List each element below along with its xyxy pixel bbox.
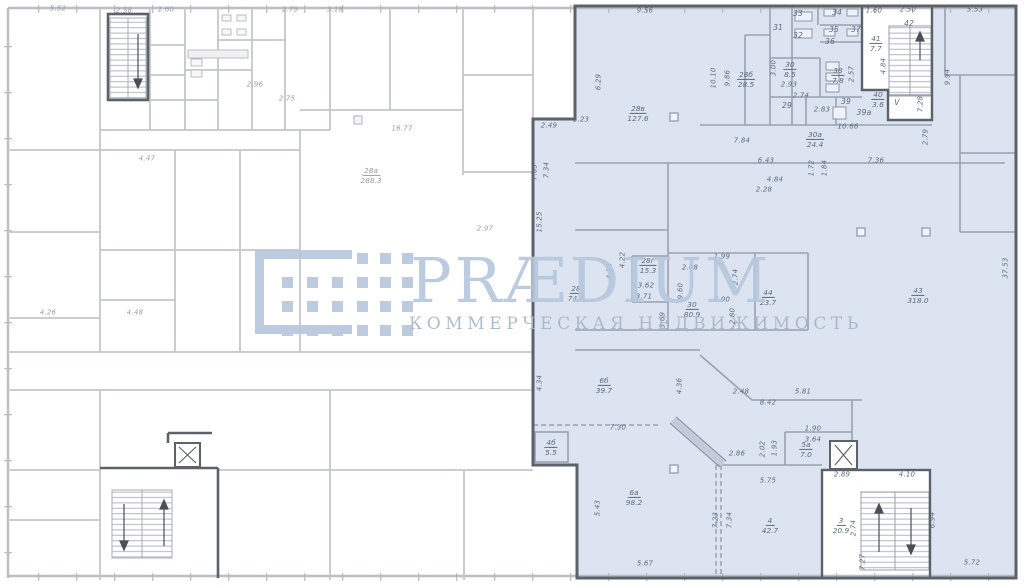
- dimension-label: 5.53: [967, 7, 983, 14]
- dimension-label: 4.26: [40, 310, 56, 317]
- dimension-label: 7.34: [544, 162, 551, 178]
- dimension-label: 3.18: [327, 7, 343, 14]
- room-number-label: 32: [793, 32, 803, 40]
- dimension-label: 2.93: [781, 82, 797, 89]
- dimension-label: 7.23: [713, 512, 720, 528]
- dimension-label: 9.86: [725, 70, 732, 86]
- dimension-label: 37.53: [1003, 257, 1010, 278]
- dimension-label: 4.36: [677, 378, 684, 394]
- room-number-label: 35: [829, 26, 839, 34]
- dimension-label: 7.03: [532, 164, 539, 180]
- dimension-label: 1.90: [805, 426, 821, 433]
- dimension-label: 2.80: [730, 308, 737, 324]
- room-number-label: 34: [832, 9, 842, 17]
- room-area-label: 4423.7: [760, 281, 776, 307]
- dimension-label: 1.72: [809, 160, 816, 176]
- room-area-label: 30а24.4: [806, 123, 824, 149]
- dimension-label: 4.22: [620, 252, 627, 268]
- dimension-label: 2.57: [849, 66, 856, 82]
- room-area-label: 442.7: [762, 509, 778, 535]
- dimension-label: 4.48: [127, 310, 143, 317]
- dimension-label: 2.28: [756, 187, 772, 194]
- stairwell-bottom-right: [861, 492, 929, 570]
- dimension-label: 1.93: [772, 440, 779, 456]
- window-band-left: [4, 8, 12, 578]
- room-area-label: 28в127.6: [627, 97, 648, 123]
- dimension-label: 2.89: [834, 472, 850, 479]
- room-area-label: 308.5: [783, 53, 796, 79]
- dimension-label: 10.66: [837, 124, 858, 131]
- dimension-label: 6.43: [758, 158, 774, 165]
- room-area-label: 417.7: [869, 27, 882, 53]
- dimension-label: 2.58: [116, 8, 132, 15]
- dimension-label: 1.60: [866, 8, 882, 15]
- dimension-label: 4.84: [881, 58, 888, 74]
- dimension-label: 4.33: [607, 263, 614, 279]
- dimension-label: 4.47: [139, 156, 155, 163]
- dimension-label: 2.02: [760, 441, 767, 457]
- dimension-label: 15.25: [537, 211, 544, 232]
- dimension-label: 7.00: [714, 297, 730, 304]
- dimension-label: 6.94: [930, 512, 937, 528]
- dimension-label: 1.99: [714, 254, 730, 261]
- room-area-label: 28г15.3: [639, 249, 656, 275]
- room-number-label: 42: [904, 20, 914, 28]
- dimension-label: 2.79: [282, 7, 298, 14]
- dimension-label: 7.30: [610, 425, 626, 432]
- room-area-label: 43318.0: [907, 279, 928, 305]
- dimension-label: 4.84: [767, 177, 783, 184]
- dimension-label: 7.27: [860, 554, 867, 570]
- room-area-label: 2874.5: [568, 277, 584, 303]
- dimension-label: 5.72: [964, 560, 980, 567]
- dimension-label: 2.49: [541, 123, 557, 130]
- dimension-label: 2.74: [793, 93, 809, 100]
- dimension-label: 2.74: [851, 520, 858, 536]
- room-number-label: 36: [825, 38, 835, 46]
- dimension-label: 2.79: [923, 129, 930, 145]
- dimension-label: 4.34: [537, 375, 544, 391]
- dimension-label: 7.28: [918, 96, 925, 112]
- dimension-label: 2.74: [733, 269, 740, 285]
- dimension-label: 5.67: [637, 561, 653, 568]
- dimension-label: 2.75: [279, 96, 295, 103]
- room-area-label: 28а288.3: [360, 159, 381, 185]
- dimension-label: 8.42: [760, 400, 776, 407]
- dimension-label: 2.50: [900, 7, 916, 14]
- stairwell-bottom-left: [112, 490, 172, 558]
- dimension-label: 4.10: [899, 472, 915, 479]
- dimension-label: 2.48: [733, 389, 749, 396]
- stairwell-top-left: [110, 18, 146, 98]
- room-number-label: 37: [851, 26, 861, 34]
- floor-plan-page: 9.561.602.505.534.847.282.573.002.932.74…: [0, 0, 1024, 587]
- dimension-label: 7.36: [868, 158, 884, 165]
- dimension-label: 7.34: [727, 512, 734, 528]
- dimension-label: 2.83: [814, 107, 830, 114]
- dimension-label: 1.84: [822, 160, 829, 176]
- dimension-label: 5.43: [595, 500, 602, 516]
- room-area-label: 28б28.5: [737, 63, 755, 89]
- walls-left-wing: [8, 8, 533, 580]
- room-area-label: 3080.9: [684, 293, 700, 319]
- room-area-label: 403.6: [871, 83, 884, 109]
- room-area-label: 6а98.2: [626, 481, 642, 507]
- room-number-label: 39а: [857, 109, 872, 117]
- room-number-label: 33: [793, 10, 803, 18]
- room-area-label: 6б39.7: [596, 369, 612, 395]
- room-area-label: 387.8: [831, 59, 844, 85]
- dimension-label: 2.86: [729, 451, 745, 458]
- room-number-label: 31: [773, 24, 783, 32]
- dimension-label: 3.00: [771, 60, 778, 76]
- dimension-label: 7.84: [734, 138, 750, 145]
- stairwell-top-right: [889, 26, 931, 96]
- dimension-label: 5.52: [50, 6, 66, 13]
- dimension-label: 1.23: [573, 117, 589, 124]
- dimension-label: 5.81: [795, 389, 811, 396]
- dimension-label: 9.56: [637, 8, 653, 15]
- dimension-label: 2.08: [682, 265, 698, 272]
- room-area-label: 320.9: [833, 509, 849, 535]
- dimension-label: 5.75: [760, 478, 776, 485]
- room-number-label: V: [894, 99, 899, 107]
- dimension-label: 1.60: [158, 7, 174, 14]
- dimension-label: 9.94: [945, 69, 952, 85]
- room-area-label: 4б5.5: [544, 431, 557, 457]
- room-area-label: 5а7.0: [799, 433, 812, 459]
- dimension-label: 3.71: [636, 294, 652, 301]
- dimension-label: 16.77: [391, 126, 412, 133]
- room-number-label: 39: [841, 98, 851, 106]
- dimension-label: 3.69: [660, 312, 667, 328]
- dimension-label: 2.97: [477, 226, 493, 233]
- dimension-label: 10.10: [711, 67, 718, 88]
- room-number-label: 29: [782, 102, 792, 110]
- dimension-label: 3.62: [638, 283, 654, 290]
- dimension-label: 6.29: [596, 74, 603, 90]
- dimension-label: 2.96: [247, 82, 263, 89]
